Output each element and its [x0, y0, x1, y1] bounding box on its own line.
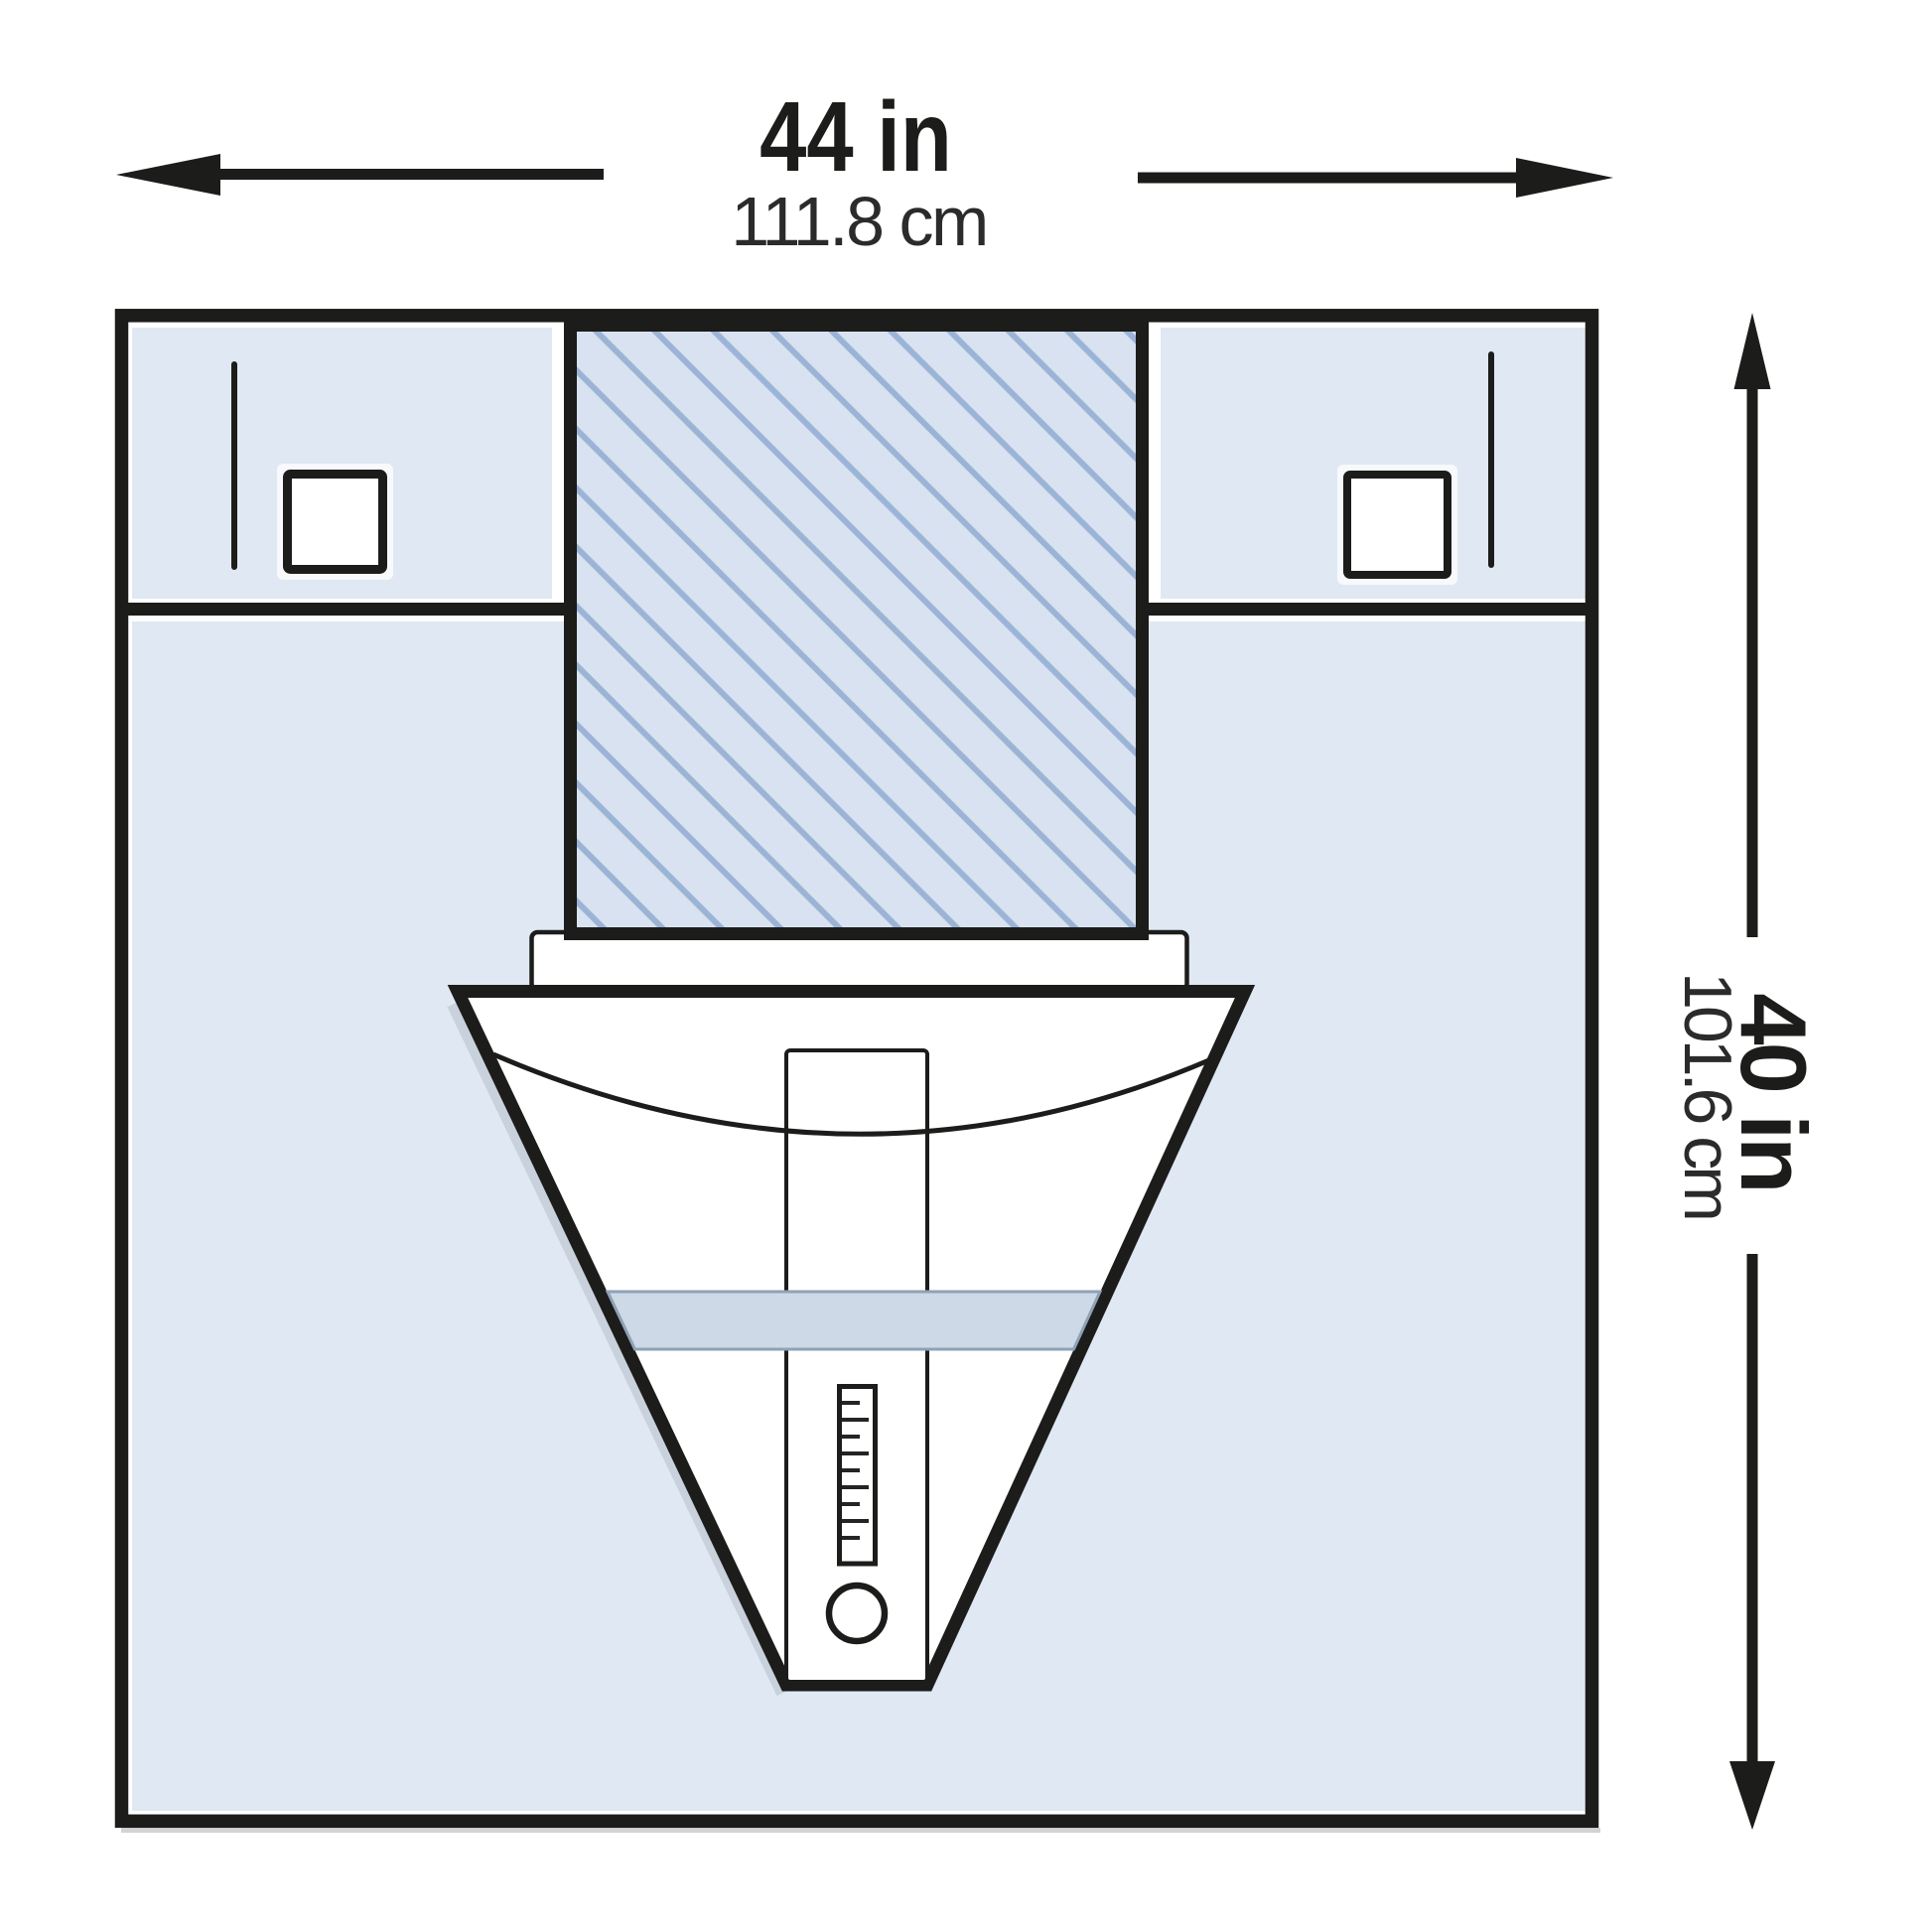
svg-text:111.8 cm: 111.8 cm [731, 183, 987, 260]
svg-text:101.6 cm: 101.6 cm [1670, 972, 1745, 1218]
svg-text:44 in: 44 in [759, 80, 952, 192]
